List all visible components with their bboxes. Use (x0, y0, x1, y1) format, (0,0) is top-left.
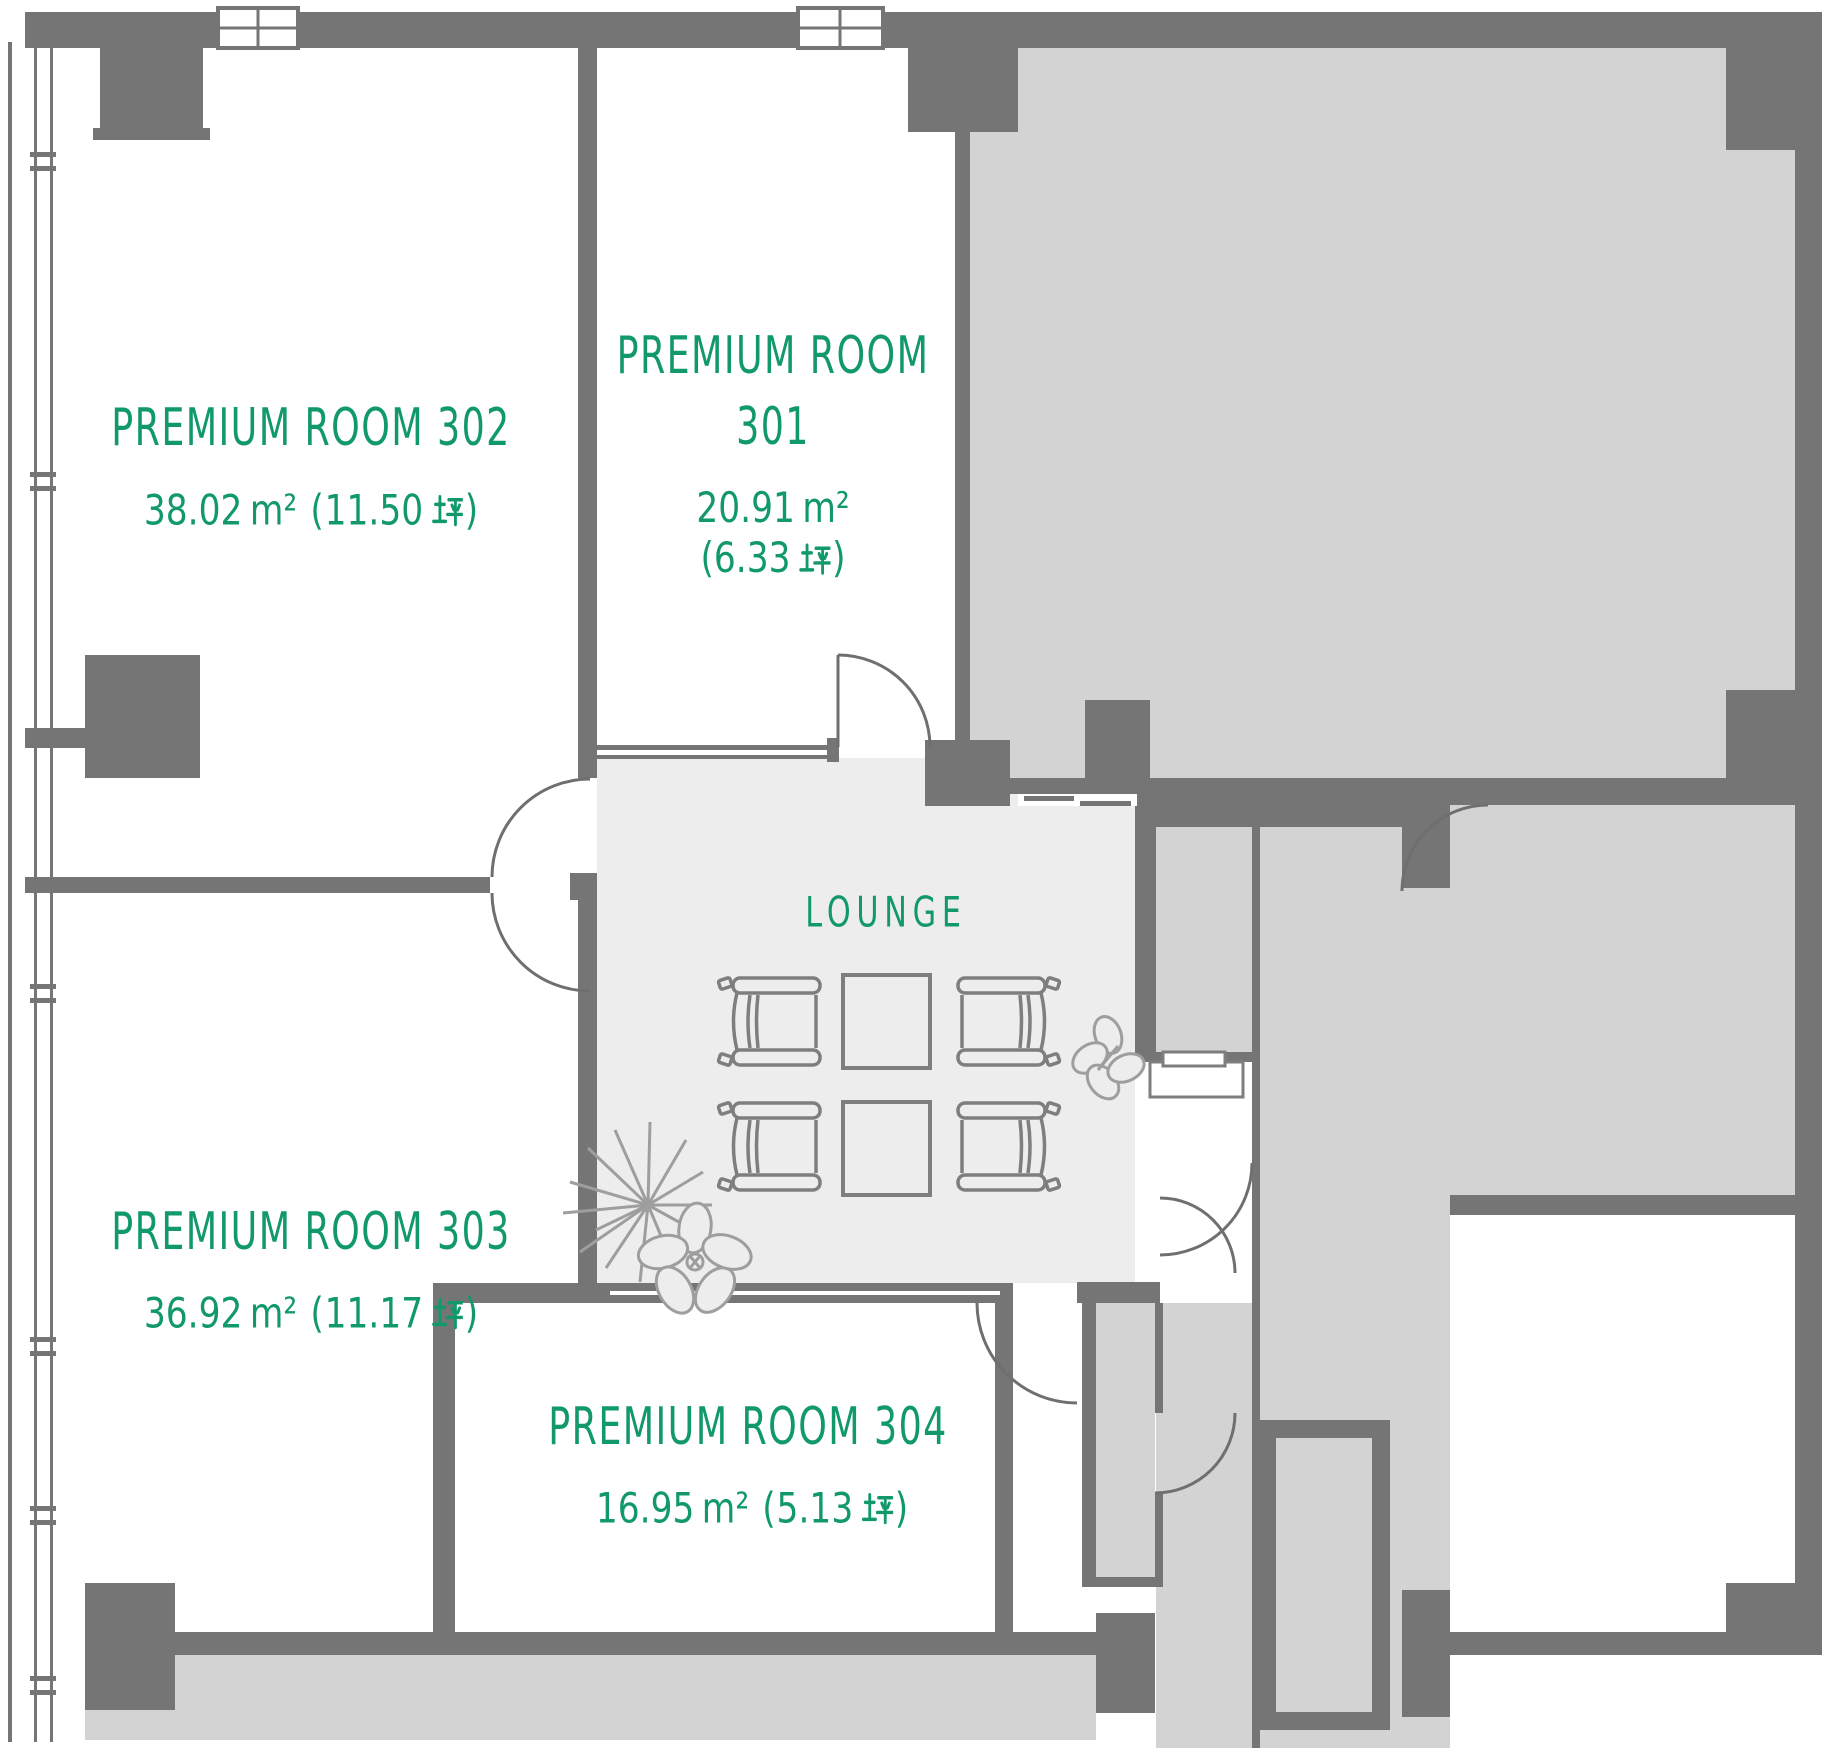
room-304-name: PREMIUM ROOM 304 (548, 1397, 947, 1457)
area-value-m2: 38.02 (144, 486, 243, 535)
room-301-label: PREMIUM ROOM 301 (550, 321, 997, 463)
area-value-tsubo: 11.50 (325, 486, 424, 535)
paren-close: ) (895, 1484, 908, 1533)
unit-m2: m² (250, 1289, 297, 1338)
area-value-tsubo: 11.17 (325, 1289, 424, 1338)
tsubo-glyph (431, 491, 463, 530)
unit-m2: m² (702, 1484, 749, 1533)
tsubo-glyph (799, 539, 831, 578)
room-303-name: PREMIUM ROOM 303 (111, 1202, 510, 1262)
labels-layer: PREMIUM ROOM 302 38.02m²(11.50) PREMIUM … (0, 0, 1838, 1748)
tsubo-glyph (861, 1489, 893, 1528)
area-value-tsubo: 5.13 (777, 1484, 854, 1533)
room-301-name-line2: 301 (617, 392, 930, 463)
room-304-area: 16.95m²(5.13) (562, 1484, 943, 1533)
tsubo-glyph (431, 1294, 463, 1333)
paren-open: ( (310, 486, 323, 535)
room-302-area: 38.02m²(11.50) (107, 486, 515, 535)
room-302-label: PREMIUM ROOM 302 (26, 398, 597, 458)
paren-close: ) (832, 533, 845, 583)
area-value-m2: 16.95 (596, 1484, 695, 1533)
unit-m2: m² (250, 486, 297, 535)
paren-open: ( (310, 1289, 323, 1338)
unit-m2: m² (802, 483, 849, 533)
area-value-tsubo: 6.33 (714, 533, 791, 583)
room-301-area: 20.91m² (6.33) (680, 483, 867, 583)
area-value-m2: 20.91 (696, 483, 795, 533)
room-302-name: PREMIUM ROOM 302 (111, 398, 510, 458)
paren-open: ( (700, 533, 713, 583)
floor-plan: PREMIUM ROOM 302 38.02m²(11.50) PREMIUM … (0, 0, 1838, 1748)
room-301-name-line1: PREMIUM ROOM (617, 321, 930, 392)
paren-close: ) (465, 486, 478, 535)
paren-open: ( (762, 1484, 775, 1533)
room-304-label: PREMIUM ROOM 304 (463, 1397, 1034, 1457)
paren-close: ) (465, 1289, 478, 1338)
lounge-label: LOUNGE (774, 888, 998, 937)
area-value-m2: 36.92 (144, 1289, 243, 1338)
lounge-name: LOUNGE (805, 888, 966, 937)
room-303-area: 36.92m²(11.17) (107, 1289, 515, 1338)
room-303-label: PREMIUM ROOM 303 (26, 1202, 597, 1262)
